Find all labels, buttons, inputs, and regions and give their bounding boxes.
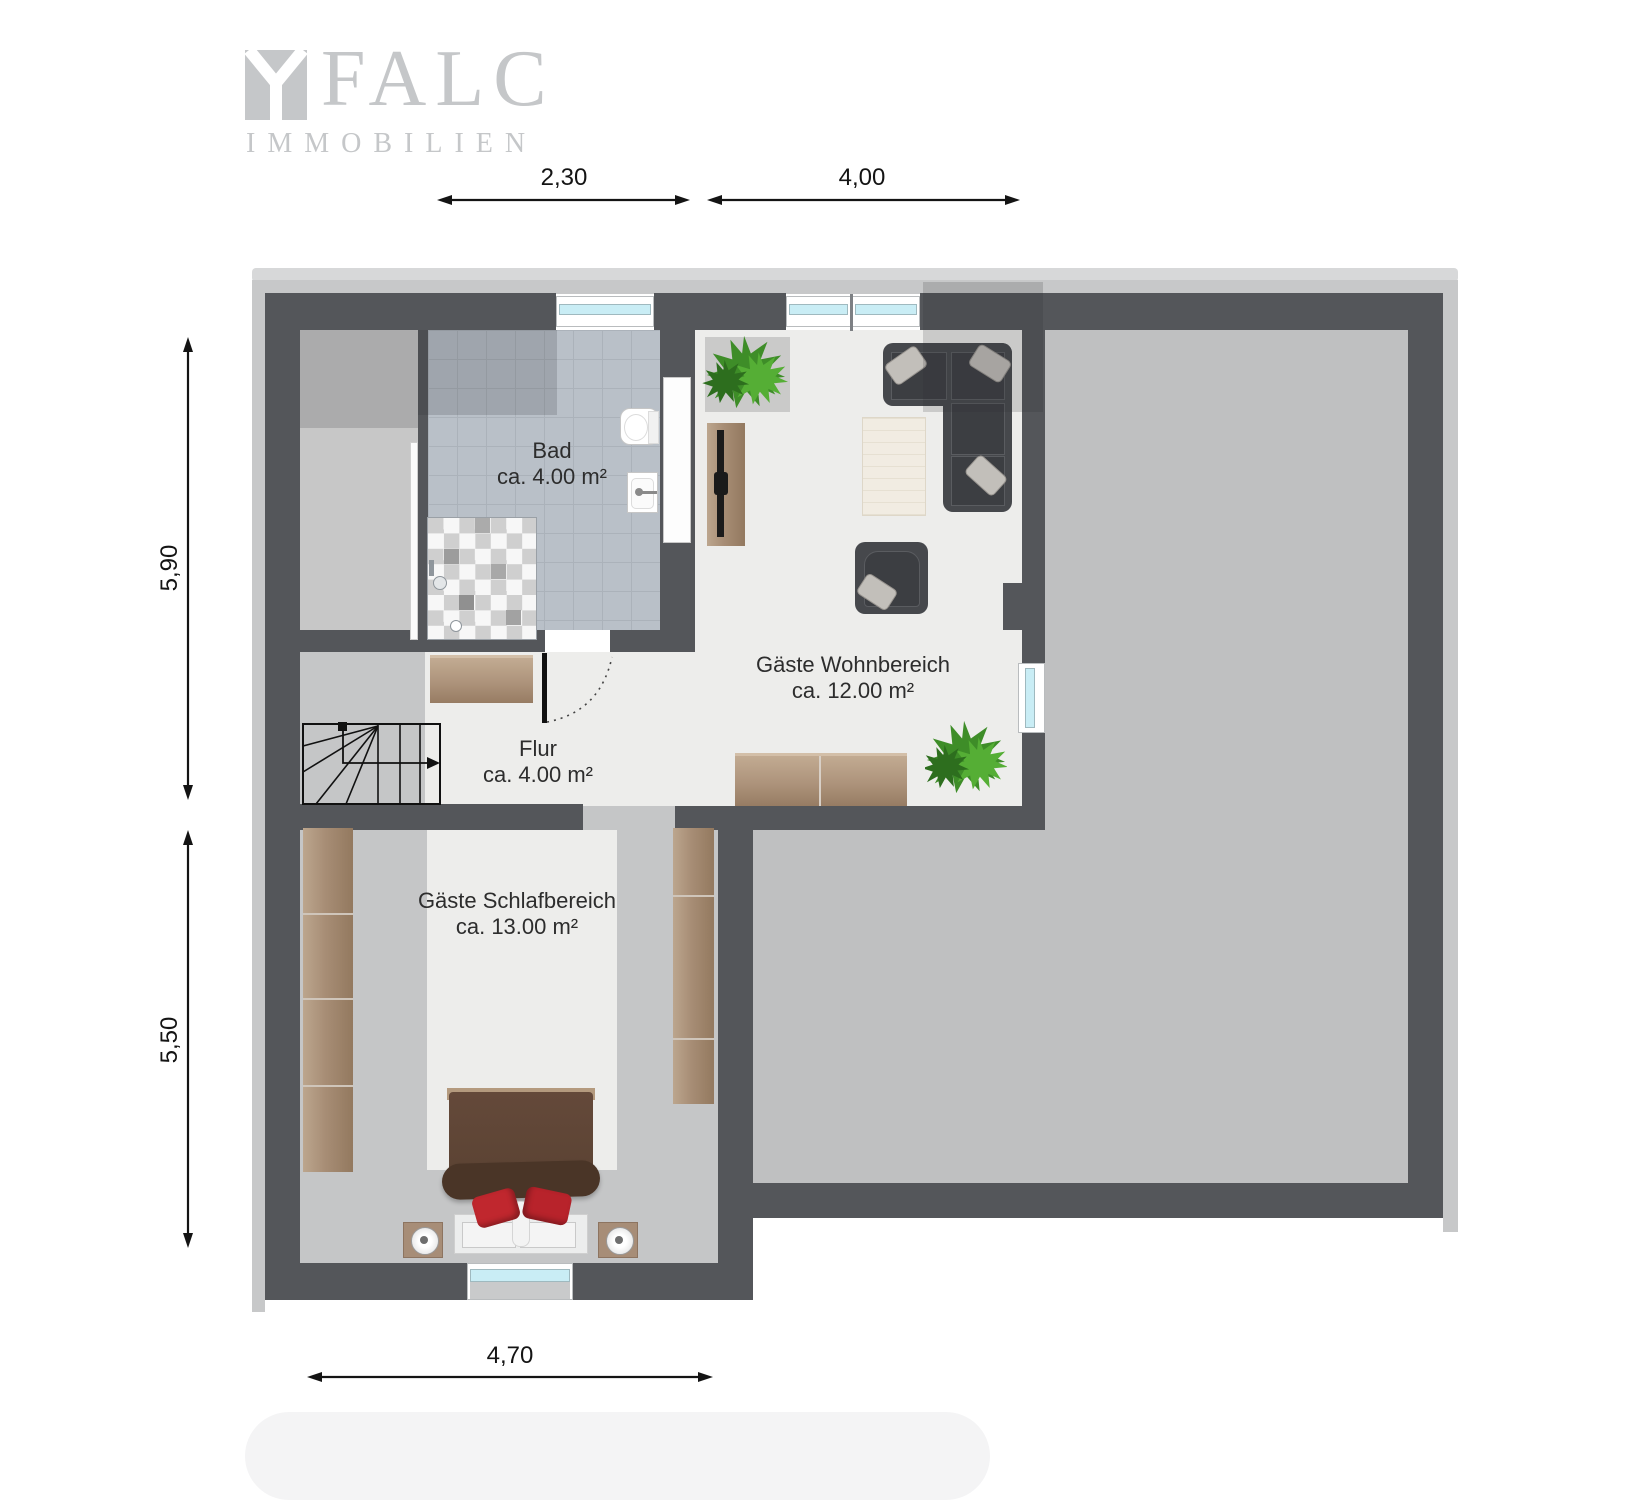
dimension-arrow-2-30 <box>437 193 690 207</box>
shower-tray <box>427 517 537 640</box>
wall-top-segment-2 <box>654 293 786 330</box>
room-label-wohnbereich: Gäste Wohnbereich ca. 12.00 m² <box>743 652 963 704</box>
dimension-arrow-4-70 <box>307 1370 713 1384</box>
wardrobe-right <box>673 828 714 1104</box>
staircase <box>300 720 445 810</box>
wall-right <box>1408 293 1443 1218</box>
room-area: ca. 13.00 m² <box>397 914 637 940</box>
shower-mosaic-cell <box>506 610 521 625</box>
dimension-arrow-4-00 <box>707 193 1020 207</box>
wardrobe-shelf-line <box>303 1085 353 1087</box>
bathroom-window <box>556 296 654 327</box>
plant-icon <box>925 716 1007 800</box>
living-window-top-glass-right <box>855 304 917 315</box>
room-name: Flur <box>458 736 618 762</box>
wall-pillar <box>1003 583 1045 630</box>
room-area: ca. 12.00 m² <box>743 678 963 704</box>
dimension-label-5-90: 5,90 <box>158 518 182 618</box>
wall-left <box>265 293 300 1300</box>
falc-logo-subtitle: IMMOBILIEN <box>246 128 537 160</box>
dimension-label-5-50: 5,50 <box>158 990 182 1090</box>
wardrobe-shelf-line <box>673 895 714 897</box>
room-label-bad: Bad ca. 4.00 m² <box>472 438 632 490</box>
dimension-arrow-5-50 <box>181 830 195 1248</box>
living-lowboard <box>735 753 907 806</box>
bedroom-window-glass <box>470 1269 570 1282</box>
shower-mosaic-cell <box>491 564 506 579</box>
shade-storage-top <box>300 330 418 428</box>
storage-sliding-door <box>410 442 418 640</box>
wardrobe-shelf-line <box>673 1038 714 1040</box>
toilet-bowl <box>624 414 648 441</box>
bathroom-door-swing-arc <box>540 650 620 730</box>
lowboard-divider <box>819 756 821 806</box>
attic-room-floor-lower <box>753 830 1045 1183</box>
living-window-right-glass <box>1025 668 1035 728</box>
nightstand-right <box>598 1222 638 1258</box>
bed-base <box>454 1214 588 1254</box>
dimension-label-4-70: 4,70 <box>460 1344 560 1368</box>
bed <box>444 1088 598 1258</box>
bed-blanket-roll <box>442 1160 601 1200</box>
sink-faucet-knob <box>635 488 643 496</box>
nightstand-left <box>403 1222 443 1258</box>
roof-band-right <box>1443 280 1458 1232</box>
nightstand-lamp-dot <box>615 1236 623 1244</box>
wall-bottom-left-a <box>265 1263 467 1300</box>
roof-band-top <box>252 280 1458 294</box>
room-label-schlafbereich: Gäste Schlafbereich ca. 13.00 m² <box>397 888 637 940</box>
wall-living-attic-lower <box>1022 733 1045 806</box>
wall-living-attic-mid <box>1022 630 1045 663</box>
bedroom-window <box>467 1263 573 1300</box>
wardrobe-shelf-line <box>303 913 353 915</box>
falc-logo-text: FALC <box>321 36 556 122</box>
living-window-mullion <box>850 294 853 331</box>
room-name: Gäste Schlafbereich <box>397 888 637 914</box>
room-name: Gäste Wohnbereich <box>743 652 963 678</box>
wardrobe-shelf-line <box>303 998 353 1000</box>
room-area: ca. 4.00 m² <box>472 464 632 490</box>
shower-head-icon <box>429 560 434 576</box>
living-window-top <box>786 296 920 327</box>
floorplan-page: Bad ca. 4.00 m² Gäste Wohnbereich ca. 12… <box>0 0 1647 1500</box>
room-label-flur: Flur ca. 4.00 m² <box>458 736 618 788</box>
dimension-label-2-30: 2,30 <box>514 166 614 190</box>
shower-mosaic-cell <box>459 595 474 610</box>
dimension-arrow-5-90 <box>181 337 195 800</box>
wall-middle-vertical <box>718 828 753 1300</box>
plan-shadow <box>245 1412 990 1500</box>
shower-mosaic-cell <box>475 518 490 533</box>
plant-icon <box>700 332 792 414</box>
bedroom-window-sill <box>470 1282 570 1299</box>
living-window-top-glass-left <box>789 304 848 315</box>
room-name: Bad <box>472 438 632 464</box>
falc-logo-icon <box>245 50 307 120</box>
wardrobe-left <box>303 828 353 1172</box>
dimension-label-4-00: 4,00 <box>812 166 912 190</box>
shower-drain-icon <box>450 620 462 632</box>
armchair <box>855 542 928 614</box>
shower-mosaic-cell <box>444 549 459 564</box>
tv-mount <box>714 472 728 495</box>
wall-storage-bottom <box>265 630 418 652</box>
tv-sideboard <box>707 423 745 546</box>
shower-faucet-icon <box>433 576 447 590</box>
attic-room-floor-upper <box>1045 330 1408 1183</box>
shade-living-corner <box>923 282 1043 412</box>
wall-bath-bottom-right <box>610 630 695 652</box>
wall-living-bottom <box>675 806 1045 830</box>
falc-logo: FALC IMMOBILIEN <box>245 44 665 164</box>
roof-band-left <box>252 280 265 1312</box>
wall-bottom-right <box>753 1183 1443 1218</box>
toilet-tank <box>648 411 659 444</box>
living-window-right <box>1018 663 1045 733</box>
hall-dresser <box>430 655 533 703</box>
nightstand-lamp-dot <box>420 1236 428 1244</box>
room-area: ca. 4.00 m² <box>458 762 618 788</box>
wall-top-segment-1 <box>265 293 556 330</box>
bathroom-tall-cabinet <box>663 377 691 543</box>
shade-bath-top <box>418 330 557 415</box>
bathroom-window-glass <box>559 304 651 315</box>
